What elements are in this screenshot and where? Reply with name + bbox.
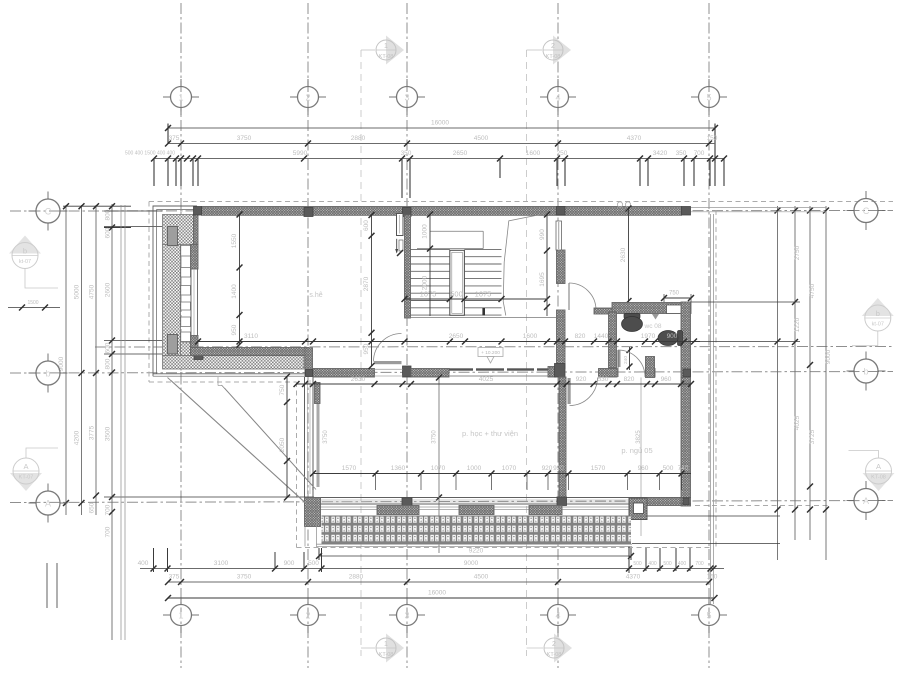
svg-text:kt-07: kt-07 xyxy=(19,259,31,265)
svg-text:s.hê: s.hê xyxy=(309,292,322,299)
svg-text:2050: 2050 xyxy=(279,437,286,452)
svg-text:1550: 1550 xyxy=(231,233,238,248)
svg-text:1220: 1220 xyxy=(794,317,801,332)
svg-text:2630: 2630 xyxy=(620,247,627,262)
svg-text:750: 750 xyxy=(669,291,680,297)
svg-text:3500: 3500 xyxy=(105,426,112,441)
svg-text:3825: 3825 xyxy=(636,430,642,444)
svg-text:2880: 2880 xyxy=(351,135,366,142)
svg-text:900: 900 xyxy=(284,560,295,567)
svg-text:4750: 4750 xyxy=(89,284,96,299)
svg-text:4025: 4025 xyxy=(479,376,494,383)
svg-text:350: 350 xyxy=(401,150,412,157)
svg-text:4370: 4370 xyxy=(627,135,642,142)
svg-text:1970: 1970 xyxy=(641,333,656,340)
svg-text:3420: 3420 xyxy=(653,150,668,157)
svg-text:500: 500 xyxy=(450,290,463,299)
svg-text:1: 1 xyxy=(384,641,388,648)
svg-text:A: A xyxy=(23,462,28,471)
svg-text:9220: 9220 xyxy=(469,548,484,555)
svg-text:920: 920 xyxy=(576,376,587,383)
svg-text:820: 820 xyxy=(575,333,586,340)
svg-text:800: 800 xyxy=(105,358,112,369)
svg-text:1440: 1440 xyxy=(594,333,609,340)
svg-text:1: 1 xyxy=(178,611,183,621)
svg-text:4: 4 xyxy=(555,611,560,621)
svg-text:3750: 3750 xyxy=(237,574,252,581)
svg-text:500: 500 xyxy=(663,465,674,472)
svg-text:16000: 16000 xyxy=(431,120,449,127)
svg-text:1: 1 xyxy=(178,93,183,103)
svg-text:kt-07: kt-07 xyxy=(872,322,884,328)
svg-text:wc 08: wc 08 xyxy=(644,323,662,330)
svg-text:16000: 16000 xyxy=(428,590,446,597)
svg-text:p. học + thư viện: p. học + thư viện xyxy=(462,429,518,438)
svg-text:3100: 3100 xyxy=(214,560,229,567)
svg-text:2600: 2600 xyxy=(105,282,112,297)
svg-text:1570: 1570 xyxy=(591,465,606,472)
svg-text:1070: 1070 xyxy=(431,465,446,472)
svg-text:1400: 1400 xyxy=(231,284,238,299)
svg-text:920: 920 xyxy=(553,465,564,472)
svg-text:740: 740 xyxy=(678,465,689,472)
svg-text:240: 240 xyxy=(623,356,629,364)
svg-text:500: 500 xyxy=(633,561,642,567)
svg-text:2: 2 xyxy=(551,43,555,50)
svg-text:950: 950 xyxy=(363,343,370,354)
svg-text:990: 990 xyxy=(539,229,546,240)
svg-text:KT-08: KT-08 xyxy=(546,54,561,60)
svg-text:960: 960 xyxy=(638,465,649,472)
svg-text:500: 500 xyxy=(308,560,319,567)
svg-text:2630: 2630 xyxy=(351,376,366,383)
svg-text:900: 900 xyxy=(667,333,678,340)
svg-text:700: 700 xyxy=(105,526,112,537)
svg-text:KT-07: KT-07 xyxy=(19,475,34,481)
svg-text:5990: 5990 xyxy=(293,150,308,157)
svg-text:b: b xyxy=(45,369,50,379)
svg-text:A: A xyxy=(876,462,881,471)
svg-text:1070: 1070 xyxy=(502,465,517,472)
svg-text:A: A xyxy=(45,499,51,509)
svg-text:9000: 9000 xyxy=(825,349,832,364)
svg-text:2870: 2870 xyxy=(363,276,370,291)
svg-text:9000: 9000 xyxy=(464,560,479,567)
svg-text:1: 1 xyxy=(384,43,388,50)
svg-text:1075: 1075 xyxy=(475,290,492,299)
svg-text:1000: 1000 xyxy=(467,465,482,472)
svg-text:600: 600 xyxy=(105,342,112,353)
svg-text:4500: 4500 xyxy=(474,574,489,581)
svg-text:350: 350 xyxy=(676,150,687,157)
svg-text:2000: 2000 xyxy=(422,275,429,290)
svg-text:250: 250 xyxy=(557,150,568,157)
svg-text:1600: 1600 xyxy=(526,150,541,157)
svg-text:C: C xyxy=(45,207,52,217)
svg-text:b: b xyxy=(876,309,880,318)
svg-text:700: 700 xyxy=(105,504,112,515)
svg-text:700: 700 xyxy=(694,150,705,157)
svg-text:b: b xyxy=(23,247,27,256)
svg-text:3750: 3750 xyxy=(323,430,329,444)
svg-text:A: A xyxy=(863,496,869,506)
svg-text:3: 3 xyxy=(404,611,409,621)
svg-text:2650: 2650 xyxy=(453,150,468,157)
svg-text:4025: 4025 xyxy=(794,415,801,430)
svg-text:KT-08: KT-08 xyxy=(379,652,394,658)
svg-text:1500: 1500 xyxy=(27,300,38,306)
svg-text:2880: 2880 xyxy=(349,574,364,581)
svg-text:KT-08: KT-08 xyxy=(547,652,562,658)
svg-text:2650: 2650 xyxy=(449,333,464,340)
svg-text:1570: 1570 xyxy=(342,465,357,472)
svg-text:600: 600 xyxy=(105,227,112,238)
svg-text:375: 375 xyxy=(169,135,180,142)
svg-text:4500: 4500 xyxy=(474,135,489,142)
svg-text:2: 2 xyxy=(305,611,310,621)
svg-text:400: 400 xyxy=(648,561,657,567)
svg-text:+ 10.200: + 10.200 xyxy=(481,350,500,356)
svg-text:1600: 1600 xyxy=(523,333,538,340)
svg-text:5: 5 xyxy=(706,93,711,103)
svg-text:375: 375 xyxy=(169,574,180,581)
svg-text:700: 700 xyxy=(695,561,704,567)
svg-text:b: b xyxy=(863,367,868,377)
svg-text:5000: 5000 xyxy=(74,284,81,299)
svg-text:960: 960 xyxy=(661,376,672,383)
svg-text:400: 400 xyxy=(138,560,149,567)
svg-text:2: 2 xyxy=(305,93,310,103)
svg-text:KT-08: KT-08 xyxy=(379,54,394,60)
svg-text:4200: 4200 xyxy=(74,430,81,445)
svg-text:3725: 3725 xyxy=(809,429,816,444)
svg-text:3750: 3750 xyxy=(432,430,438,444)
svg-text:4: 4 xyxy=(555,93,560,103)
svg-text:950: 950 xyxy=(231,324,238,335)
svg-text:p. ngủ 05: p. ngủ 05 xyxy=(621,446,652,455)
svg-text:650: 650 xyxy=(89,502,96,513)
svg-text:820: 820 xyxy=(624,376,635,383)
svg-text:2750: 2750 xyxy=(794,245,801,260)
svg-text:3: 3 xyxy=(404,93,409,103)
svg-text:400: 400 xyxy=(678,561,687,567)
svg-text:1360: 1360 xyxy=(391,465,406,472)
svg-text:920: 920 xyxy=(542,465,553,472)
svg-text:C: C xyxy=(863,206,870,216)
svg-text:5: 5 xyxy=(706,611,711,621)
svg-text:150: 150 xyxy=(707,135,718,142)
svg-text:530: 530 xyxy=(598,376,609,383)
svg-text:1000: 1000 xyxy=(422,224,429,239)
svg-text:150: 150 xyxy=(707,574,718,581)
svg-text:KT-08: KT-08 xyxy=(871,475,886,481)
svg-text:4750: 4750 xyxy=(809,283,816,298)
svg-text:4370: 4370 xyxy=(626,574,641,581)
svg-text:1695: 1695 xyxy=(539,272,546,287)
svg-text:600: 600 xyxy=(363,220,370,231)
svg-text:3750: 3750 xyxy=(237,135,252,142)
svg-text:3775: 3775 xyxy=(89,425,96,440)
svg-text:2: 2 xyxy=(552,641,556,648)
svg-text:750: 750 xyxy=(279,384,286,395)
svg-text:500 400 1500 400 400: 500 400 1500 400 400 xyxy=(125,151,175,157)
svg-text:500: 500 xyxy=(663,561,672,567)
svg-text:3110: 3110 xyxy=(244,333,258,340)
